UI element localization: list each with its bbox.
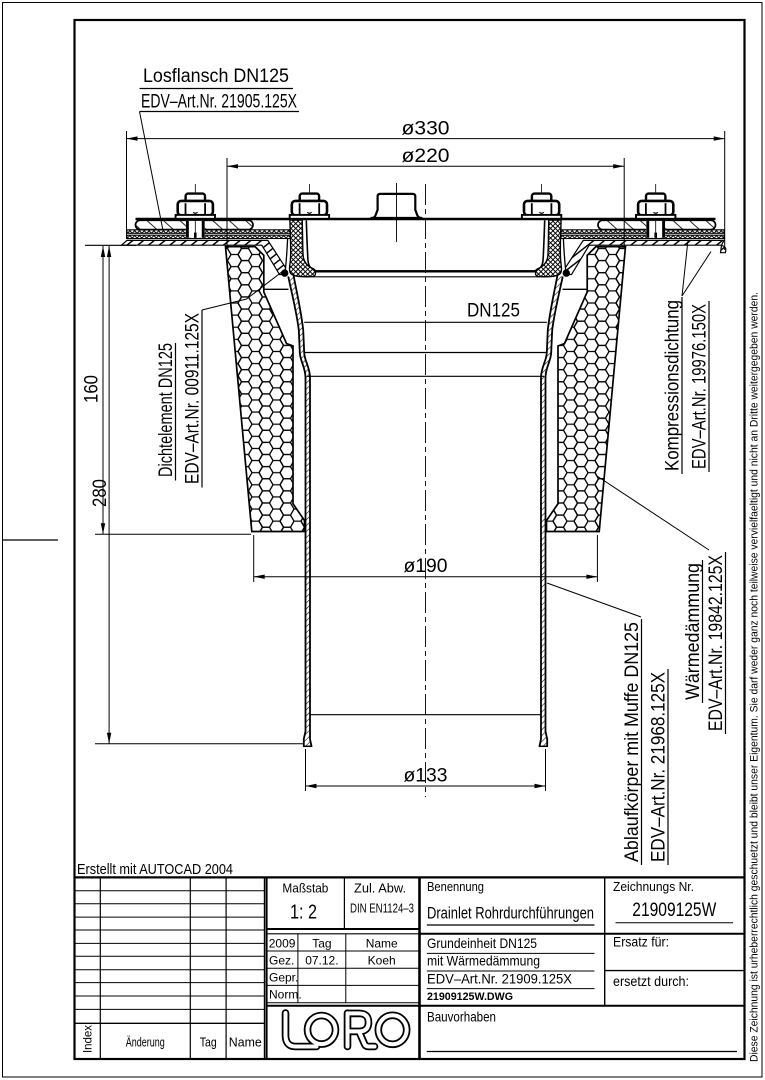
svg-text:Kompressionsdichtung: Kompressionsdichtung (663, 300, 684, 471)
svg-text:EDV–Art.Nr. 21909.125X: EDV–Art.Nr. 21909.125X (427, 970, 573, 986)
svg-text:Gez.: Gez. (269, 954, 294, 968)
svg-text:Zeichnungs Nr.: Zeichnungs Nr. (613, 879, 694, 894)
svg-text:07.12.: 07.12. (305, 954, 338, 968)
svg-text:Tag: Tag (312, 937, 331, 951)
svg-text:Ersatz für:: Ersatz für: (613, 934, 669, 950)
svg-text:Drainlet Rohrdurchführungen: Drainlet Rohrdurchführungen (427, 904, 594, 923)
svg-text:Gepr.: Gepr. (269, 971, 298, 985)
svg-text:EDV–Art.Nr. 19842.125X: EDV–Art.Nr. 19842.125X (706, 555, 727, 731)
svg-text:Zul. Abw.: Zul. Abw. (354, 880, 406, 895)
svg-text:Wärmedämmung: Wärmedämmung (683, 563, 704, 700)
svg-text:Tag: Tag (200, 1034, 217, 1049)
svg-text:Losflansch DN125: Losflansch DN125 (143, 66, 289, 87)
svg-text:Änderung: Änderung (126, 1034, 165, 1049)
svg-text:Benennung: Benennung (427, 879, 484, 894)
svg-text:Index: Index (81, 1025, 95, 1053)
svg-text:Maßstab: Maßstab (282, 880, 328, 895)
svg-text:DN125: DN125 (467, 301, 520, 322)
svg-text:Grundeinheit DN125: Grundeinheit DN125 (427, 935, 537, 951)
svg-text:ø190: ø190 (404, 556, 448, 577)
svg-text:Diese Zeichnung ist urheberrec: Diese Zeichnung ist urheberrechtlich ges… (749, 292, 761, 1062)
svg-text:EDV–Art.Nr. 00911.125X: EDV–Art.Nr. 00911.125X (183, 313, 204, 484)
svg-text:EDV–Art.Nr. 21905.125X: EDV–Art.Nr. 21905.125X (141, 92, 297, 113)
svg-text:DIN EN1124–3: DIN EN1124–3 (350, 902, 414, 916)
svg-text:ø133: ø133 (404, 766, 448, 787)
svg-text:Name: Name (229, 1034, 262, 1049)
svg-text:Koeh: Koeh (368, 954, 396, 968)
svg-text:280: 280 (90, 479, 111, 507)
svg-text:Bauvorhaben: Bauvorhaben (427, 1008, 496, 1024)
svg-text:Norm.: Norm. (269, 988, 302, 1002)
svg-text:mit Wärmedämmung: mit Wärmedämmung (427, 953, 540, 969)
svg-text:Dichtelement DN125: Dichtelement DN125 (156, 343, 177, 477)
svg-text:Ablaufkörper mit Muffe DN125: Ablaufkörper mit Muffe DN125 (622, 622, 643, 862)
svg-text:21909125W.DWG: 21909125W.DWG (427, 991, 513, 1003)
svg-text:ø220: ø220 (402, 146, 450, 167)
svg-text:EDV–Art.Nr. 21968.125X: EDV–Art.Nr. 21968.125X (649, 672, 670, 862)
svg-text:1: 2: 1: 2 (290, 901, 317, 923)
svg-text:Erstellt mit AUTOCAD 2004: Erstellt mit AUTOCAD 2004 (77, 861, 233, 878)
svg-text:ø330: ø330 (402, 119, 450, 140)
svg-text:160: 160 (82, 375, 103, 403)
svg-text:21909125W: 21909125W (632, 900, 716, 921)
svg-text:EDV–Art.Nr. 19976.150X: EDV–Art.Nr. 19976.150X (690, 304, 711, 469)
svg-text:2009: 2009 (269, 937, 296, 951)
svg-text:ersetzt durch:: ersetzt durch: (613, 973, 689, 989)
svg-text:Name: Name (366, 937, 398, 951)
